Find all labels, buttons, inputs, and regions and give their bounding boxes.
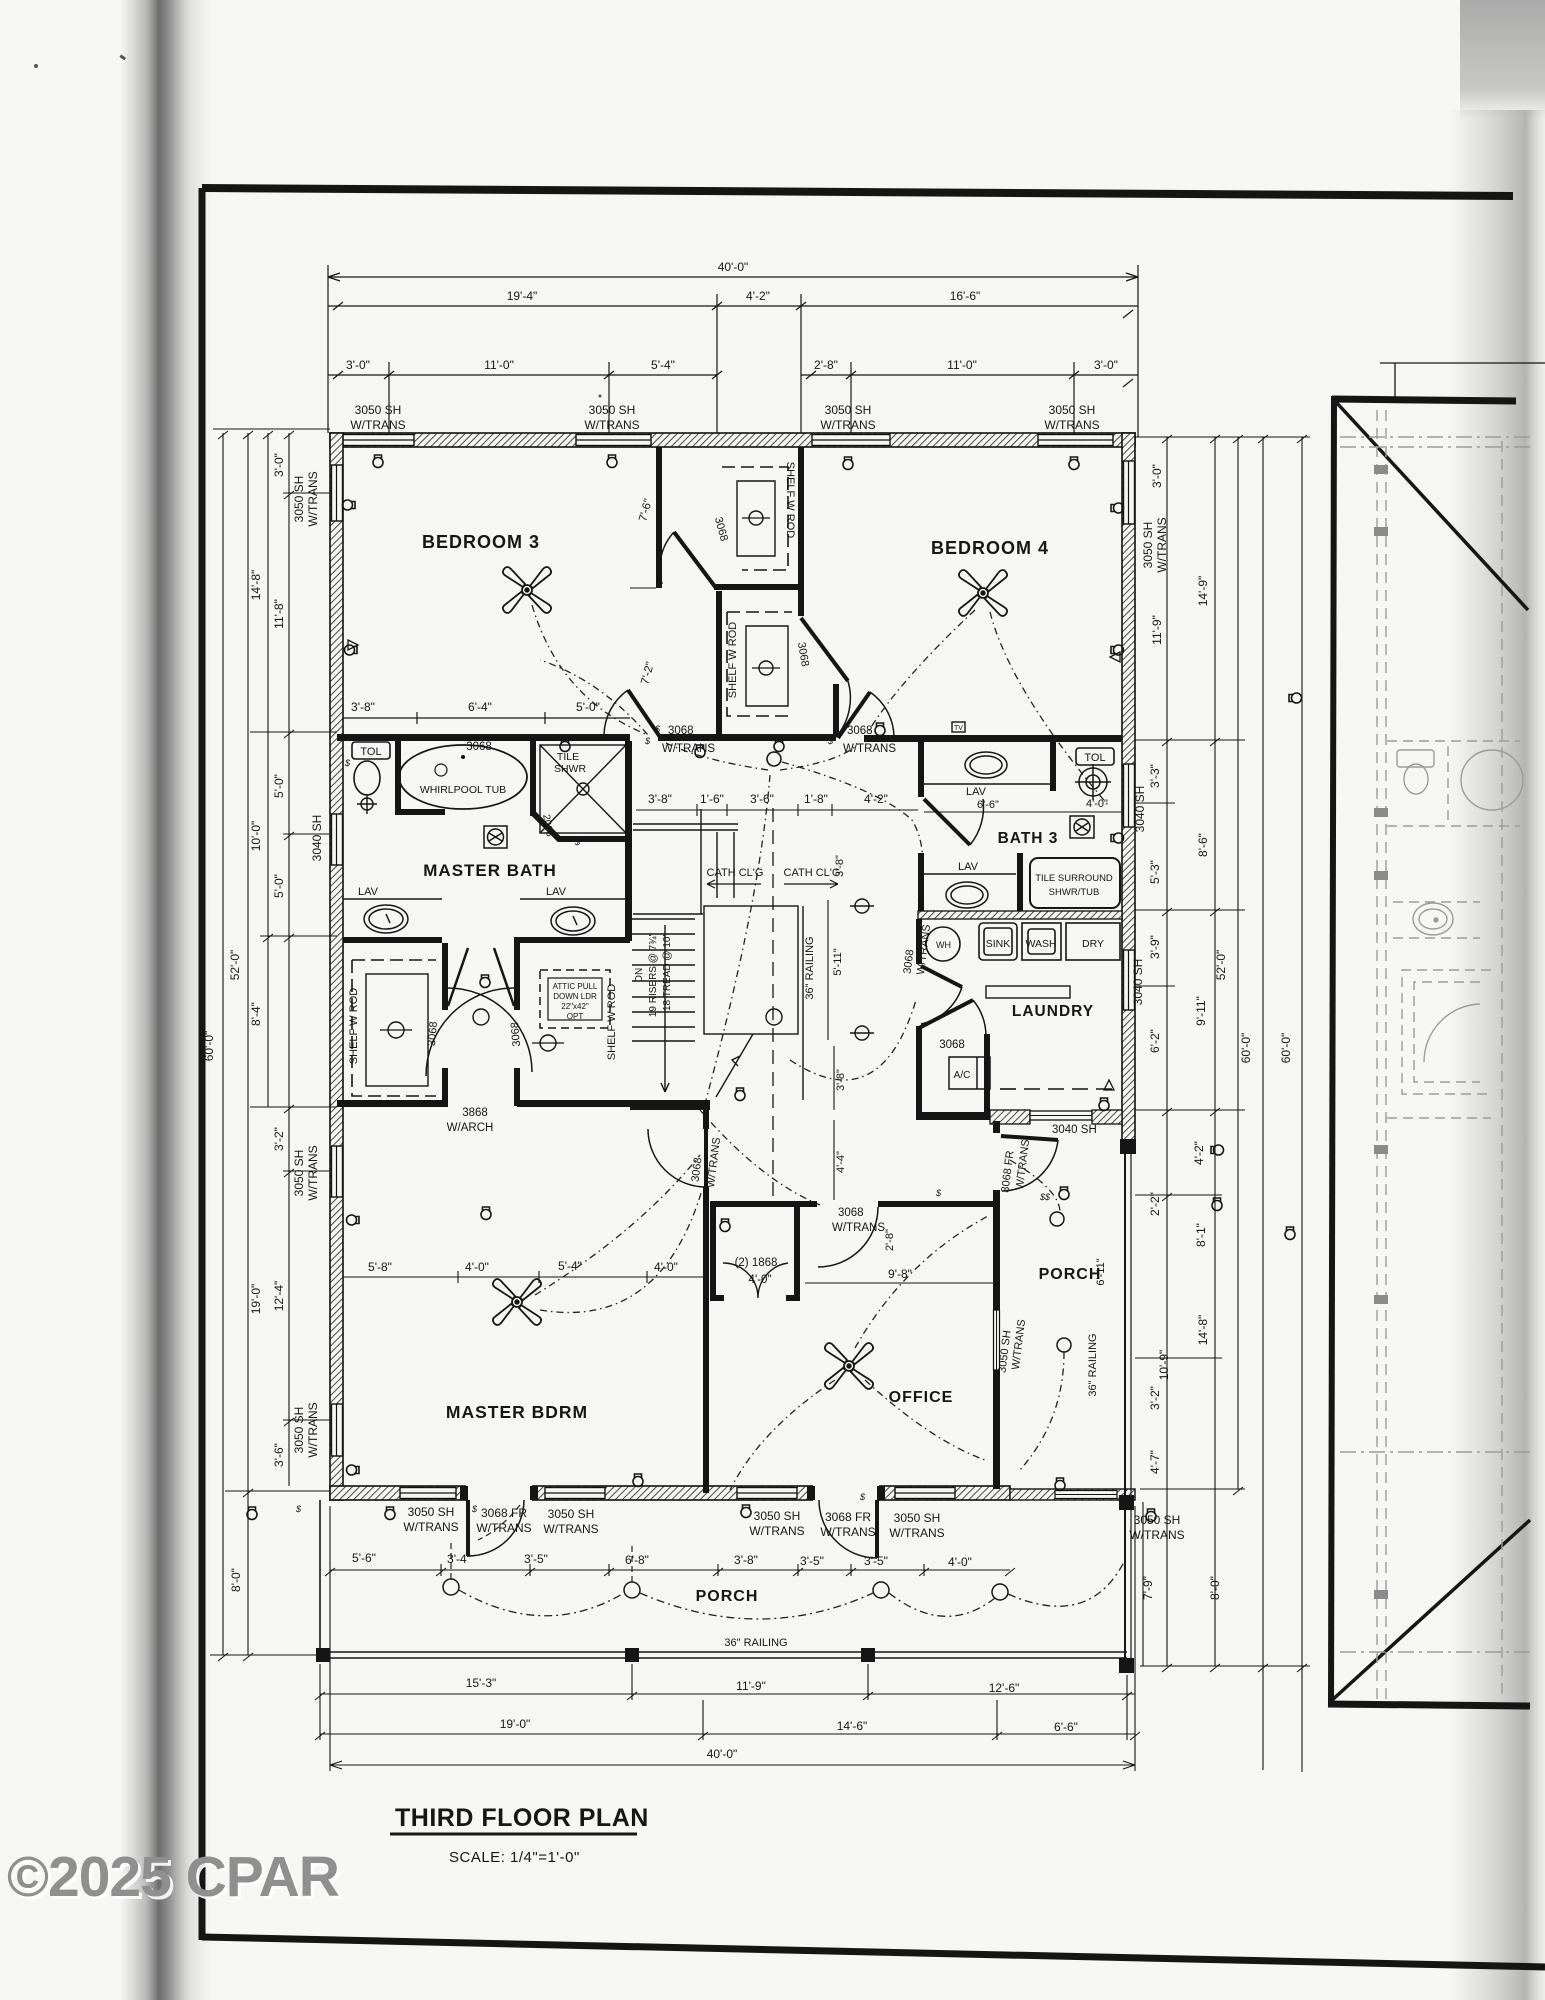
svg-text:3'-0": 3'-0" <box>272 453 286 477</box>
svg-text:3868: 3868 <box>462 1107 488 1119</box>
svg-text:3050 SH: 3050 SH <box>292 1150 306 1197</box>
svg-text:W/TRANS: W/TRANS <box>749 1524 804 1538</box>
svg-text:3'-4": 3'-4" <box>447 1552 471 1566</box>
svg-text:THIRD FLOOR PLAN: THIRD FLOOR PLAN <box>395 1804 649 1832</box>
svg-text:3'-6": 3'-6" <box>272 1443 286 1467</box>
svg-text:4'-0": 4'-0" <box>948 1555 972 1569</box>
svg-text:6'-6": 6'-6" <box>977 799 999 811</box>
svg-text:11'-0": 11'-0" <box>947 358 977 372</box>
svg-text:11'-8": 11'-8" <box>272 599 286 629</box>
svg-text:14'-6": 14'-6" <box>837 1719 868 1733</box>
svg-text:6'-6": 6'-6" <box>1054 1720 1078 1734</box>
svg-text:5'-4": 5'-4" <box>651 358 675 372</box>
svg-text:$: $ <box>471 1504 478 1514</box>
svg-text:BATH 3: BATH 3 <box>998 830 1059 847</box>
svg-text:3050 SH: 3050 SH <box>1141 522 1155 569</box>
svg-text:10'-9": 10'-9" <box>1157 1350 1171 1381</box>
svg-text:52'-0": 52'-0" <box>1214 950 1228 981</box>
svg-text:3040 SH: 3040 SH <box>310 815 324 862</box>
svg-text:10'-0": 10'-0" <box>249 821 263 852</box>
svg-text:5'-3": 5'-3" <box>1148 860 1162 884</box>
svg-text:3'-5": 3'-5" <box>800 1554 824 1568</box>
svg-text:LAV: LAV <box>358 886 379 898</box>
svg-text:3050 SH: 3050 SH <box>1049 403 1096 417</box>
svg-text:SHELF W ROD: SHELF W ROD <box>348 988 360 1064</box>
svg-text:$: $ <box>654 724 661 734</box>
svg-text:3'-2": 3'-2" <box>1148 1386 1162 1410</box>
svg-text:$: $ <box>859 1492 866 1502</box>
svg-text:40'-0": 40'-0" <box>718 260 749 274</box>
svg-text:$: $ <box>827 736 834 746</box>
svg-text:11'-9": 11'-9" <box>1150 615 1164 645</box>
svg-text:SHELF W ROD: SHELF W ROD <box>784 462 796 538</box>
svg-text:3068: 3068 <box>466 741 492 753</box>
svg-text:3068: 3068 <box>509 1022 523 1047</box>
svg-text:4'-0": 4'-0" <box>465 1260 489 1274</box>
svg-text:$: $ <box>644 736 651 746</box>
svg-text:SHWR/TUB: SHWR/TUB <box>1049 887 1100 898</box>
svg-text:W/TRANS: W/TRANS <box>820 418 875 432</box>
svg-text:14'-9": 14'-9" <box>1196 576 1210 607</box>
svg-text:DOWN LDR: DOWN LDR <box>553 992 597 1001</box>
svg-text:12'-4": 12'-4" <box>272 1281 286 1312</box>
svg-text:5'-0": 5'-0" <box>272 774 286 798</box>
svg-text:60'-0": 60'-0" <box>202 1031 216 1062</box>
svg-text:6'-11": 6'-11" <box>1095 1258 1107 1285</box>
svg-text:PORCH: PORCH <box>696 1588 759 1605</box>
svg-text:$: $ <box>935 1188 942 1198</box>
svg-text:11'-9": 11'-9" <box>736 1679 766 1693</box>
svg-text:3050 SH: 3050 SH <box>894 1511 941 1525</box>
svg-text:W/TRANS: W/TRANS <box>543 1522 598 1536</box>
svg-text:SHWR: SHWR <box>554 763 586 775</box>
svg-text:W/TRANS: W/TRANS <box>1129 1528 1184 1542</box>
svg-text:3'-8": 3'-8" <box>734 1553 758 1567</box>
svg-text:SHELF W ROD: SHELF W ROD <box>727 622 739 698</box>
svg-text:PORCH: PORCH <box>1039 1266 1102 1283</box>
svg-text:15'-3": 15'-3" <box>466 1676 497 1690</box>
svg-text:3040 SH: 3040 SH <box>1131 959 1145 1006</box>
svg-text:19 RISERS @ 7¾": 19 RISERS @ 7¾" <box>648 932 659 1017</box>
svg-text:3050 SH: 3050 SH <box>1134 1513 1181 1527</box>
svg-text:11'-0": 11'-0" <box>484 358 514 372</box>
svg-text:4'-4": 4'-4" <box>835 1151 847 1173</box>
svg-text:W/TRANS: W/TRANS <box>306 1402 320 1457</box>
svg-text:18 TREAD @ 10": 18 TREAD @ 10" <box>662 933 673 1011</box>
svg-text:3'-6": 3'-6" <box>750 792 774 806</box>
svg-text:BEDROOM 3: BEDROOM 3 <box>422 532 540 552</box>
svg-text:5'-0": 5'-0" <box>576 700 600 714</box>
svg-text:40'-0": 40'-0" <box>707 1747 738 1761</box>
svg-text:W/TRANS: W/TRANS <box>1044 418 1099 432</box>
svg-text:TILE SURROUND: TILE SURROUND <box>1035 873 1113 884</box>
svg-text:SHELF W ROD: SHELF W ROD <box>606 984 618 1060</box>
svg-text:TV: TV <box>954 725 963 732</box>
svg-text:5'-8": 5'-8" <box>368 1260 392 1274</box>
svg-text:3068 FR: 3068 FR <box>825 1510 871 1524</box>
svg-text:16'-6": 16'-6" <box>950 289 981 303</box>
svg-text:3'-3": 3'-3" <box>1148 764 1162 788</box>
svg-text:4'-2": 4'-2" <box>1192 1141 1206 1165</box>
svg-text:60'-0": 60'-0" <box>1279 1033 1293 1064</box>
svg-text:5'-0": 5'-0" <box>272 874 286 898</box>
svg-text:2'-8": 2'-8" <box>814 358 838 372</box>
svg-text:MASTER BATH: MASTER BATH <box>423 861 556 880</box>
svg-text:4'-0": 4'-0" <box>654 1260 678 1274</box>
svg-text:W/TRANS: W/TRANS <box>306 1145 320 1200</box>
svg-text:ATTIC PULL: ATTIC PULL <box>553 982 598 991</box>
svg-text:DN: DN <box>634 968 645 982</box>
svg-text:OFFICE: OFFICE <box>889 1389 954 1406</box>
svg-text:19'-4": 19'-4" <box>507 289 538 303</box>
svg-text:8'-0": 8'-0" <box>229 1568 243 1592</box>
svg-text:12'-6": 12'-6" <box>989 1681 1020 1695</box>
svg-text:36" RAILING: 36" RAILING <box>804 936 816 999</box>
svg-text:8'-0": 8'-0" <box>1208 1576 1222 1600</box>
svg-text:2'-2": 2'-2" <box>1148 1192 1162 1216</box>
svg-text:3'-8": 3'-8" <box>835 1069 847 1091</box>
svg-text:3050 SH: 3050 SH <box>355 403 402 417</box>
svg-text:3040 SH: 3040 SH <box>1052 1124 1097 1136</box>
svg-text:W/TRANS: W/TRANS <box>584 418 639 432</box>
svg-text:3050 SH: 3050 SH <box>548 1507 595 1521</box>
svg-text:4'-2": 4'-2" <box>746 289 770 303</box>
svg-text:19'-0": 19'-0" <box>500 1717 531 1731</box>
svg-text:SCALE: 1/4"=1'-0": SCALE: 1/4"=1'-0" <box>449 1849 580 1866</box>
svg-text:(2) 1868: (2) 1868 <box>735 1257 778 1269</box>
svg-text:CATH CL'G: CATH CL'G <box>707 867 764 879</box>
svg-text:$$: $$ <box>1039 1192 1051 1202</box>
svg-text:W/ARCH: W/ARCH <box>447 1122 494 1134</box>
svg-text:52'-0": 52'-0" <box>228 950 242 981</box>
svg-text:36" RAILING: 36" RAILING <box>724 1637 787 1649</box>
svg-text:1'-8": 1'-8" <box>804 792 828 806</box>
svg-text:W/TRANS: W/TRANS <box>820 1525 875 1539</box>
svg-text:W/TRANS: W/TRANS <box>403 1520 458 1534</box>
svg-text:7'-9": 7'-9" <box>1141 1576 1155 1600</box>
svg-text:5'-6": 5'-6" <box>352 1551 376 1565</box>
svg-text:3'-8": 3'-8" <box>834 855 846 877</box>
svg-text:60'-0": 60'-0" <box>1239 1033 1253 1064</box>
svg-text:LAV: LAV <box>966 786 987 798</box>
svg-text:W/TRANS: W/TRANS <box>832 1222 885 1234</box>
svg-text:8'-6": 8'-6" <box>1196 833 1210 857</box>
svg-text:3'-2": 3'-2" <box>272 1127 286 1151</box>
svg-text:19'-0": 19'-0" <box>249 1284 263 1315</box>
svg-text:TILE: TILE <box>557 751 579 763</box>
svg-text:9'-11": 9'-11" <box>1194 996 1208 1026</box>
svg-text:4'-2": 4'-2" <box>864 792 888 806</box>
svg-text:A/C: A/C <box>954 1070 971 1081</box>
svg-text:36" RAILING: 36" RAILING <box>1087 1333 1099 1396</box>
svg-text:3050 SH: 3050 SH <box>292 476 306 523</box>
svg-text:$: $ <box>295 1504 302 1514</box>
svg-text:3050 SH: 3050 SH <box>825 403 872 417</box>
svg-text:8'-4": 8'-4" <box>249 1002 263 1026</box>
svg-text:BEDROOM 4: BEDROOM 4 <box>931 538 1049 558</box>
svg-text:$: $ <box>917 900 924 910</box>
svg-text:3'-0": 3'-0" <box>346 358 370 372</box>
svg-text:9'-8": 9'-8" <box>888 1267 912 1281</box>
svg-text:TOL: TOL <box>360 746 381 758</box>
svg-text:6'-2": 6'-2" <box>1148 1029 1162 1053</box>
svg-text:W/TRANS: W/TRANS <box>476 1521 531 1535</box>
svg-text:4'-0": 4'-0" <box>749 1274 772 1286</box>
svg-text:14'-8": 14'-8" <box>249 570 263 601</box>
svg-text:14'-8": 14'-8" <box>1196 1315 1210 1346</box>
svg-text:6'-4": 6'-4" <box>468 700 492 714</box>
svg-text:3068: 3068 <box>668 725 694 737</box>
svg-text:3050 SH: 3050 SH <box>408 1505 455 1519</box>
svg-text:4'-0": 4'-0" <box>1086 798 1108 810</box>
svg-text:CATH CL'G: CATH CL'G <box>784 867 841 879</box>
svg-text:3'-5": 3'-5" <box>864 1554 888 1568</box>
svg-text:3068: 3068 <box>847 725 873 737</box>
svg-text:5'-11": 5'-11" <box>832 948 844 975</box>
svg-text:W/TRANS: W/TRANS <box>662 743 715 755</box>
svg-text:3050 SH: 3050 SH <box>292 1407 306 1454</box>
svg-text:3'-0": 3'-0" <box>1094 358 1118 372</box>
svg-text:W/TRANS: W/TRANS <box>306 471 320 526</box>
svg-text:3068: 3068 <box>939 1039 965 1051</box>
svg-text:8'-1": 8'-1" <box>1194 1223 1208 1247</box>
svg-text:3'-0": 3'-0" <box>1150 464 1164 488</box>
svg-text:OPT: OPT <box>567 1012 584 1021</box>
svg-text:TOL: TOL <box>1084 752 1105 764</box>
svg-text:3'-8": 3'-8" <box>648 792 672 806</box>
svg-text:©2025 CPAR: ©2025 CPAR <box>7 1845 339 1909</box>
svg-text:4'-7": 4'-7" <box>1148 1450 1162 1474</box>
svg-text:$: $ <box>574 837 581 847</box>
svg-text:WH: WH <box>936 940 951 950</box>
svg-text:LAV: LAV <box>546 886 567 898</box>
svg-text:W/TRANS: W/TRANS <box>1155 517 1169 572</box>
svg-text:1'-6": 1'-6" <box>700 792 724 806</box>
svg-text:W/TRANS: W/TRANS <box>350 418 405 432</box>
svg-text:W/TRANS: W/TRANS <box>889 1526 944 1540</box>
svg-text:WHIRLPOOL TUB: WHIRLPOOL TUB <box>420 784 506 796</box>
svg-text:WASH: WASH <box>1025 938 1056 950</box>
svg-text:LAV: LAV <box>958 861 979 873</box>
svg-text:LAUNDRY: LAUNDRY <box>1012 1003 1094 1020</box>
svg-text:6'-8": 6'-8" <box>625 1553 649 1567</box>
svg-text:SINK: SINK <box>986 938 1011 950</box>
svg-text:3068: 3068 <box>838 1207 864 1219</box>
svg-text:DRY: DRY <box>1082 938 1104 950</box>
svg-text:2'-8": 2'-8" <box>884 1229 896 1251</box>
svg-text:3068 FR: 3068 FR <box>481 1506 527 1520</box>
svg-text:W/TRANS: W/TRANS <box>843 743 896 755</box>
svg-text:3'-9": 3'-9" <box>1148 935 1162 959</box>
svg-text:22"x42": 22"x42" <box>561 1002 589 1011</box>
svg-text:3'-5": 3'-5" <box>524 1552 548 1566</box>
svg-text:3'-8": 3'-8" <box>351 700 375 714</box>
svg-text:3050 SH: 3050 SH <box>589 403 636 417</box>
svg-text:MASTER BDRM: MASTER BDRM <box>446 1402 588 1422</box>
svg-text:$: $ <box>344 758 351 768</box>
svg-text:3050 SH: 3050 SH <box>754 1509 801 1523</box>
svg-text:3040 SH: 3040 SH <box>1133 786 1147 833</box>
